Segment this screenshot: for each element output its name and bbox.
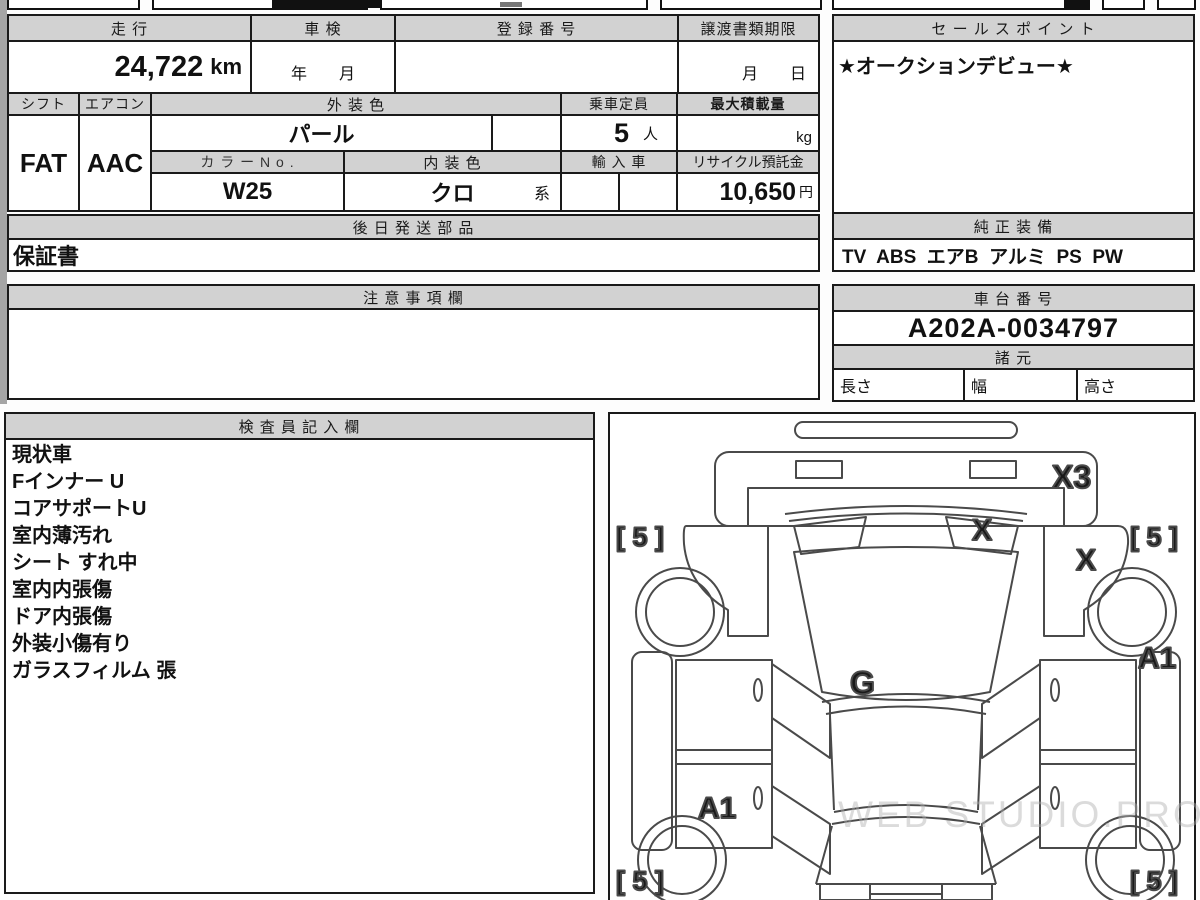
mileage-value: 24,722 km	[9, 42, 252, 94]
left-margin-strip	[0, 0, 7, 404]
sill-left	[632, 652, 672, 850]
handle-rear-right	[1051, 787, 1059, 809]
rear-band-1	[834, 805, 978, 812]
aircon-header: エアコン	[80, 94, 152, 116]
mark-g: G	[850, 665, 875, 701]
shift-value: FAT	[9, 116, 80, 210]
front-bumper-strip	[795, 422, 1017, 438]
transfer-deadline-value: 月 日	[679, 42, 818, 94]
inspector-note-line: Fインナー U	[12, 469, 587, 496]
inspector-box: 検 査 員 記 入 欄 現状車 Fインナー U コアサポートU 室内薄汚れ シー…	[4, 412, 595, 894]
exterior-color-extra	[493, 116, 562, 152]
top-cut-cell	[152, 0, 368, 10]
spec-height: 高さ	[1078, 370, 1193, 400]
handle-rear-left	[754, 787, 762, 809]
top-cut-cell	[660, 0, 822, 10]
notes-value	[9, 310, 818, 398]
exterior-color-header: 外 装 色	[152, 94, 562, 116]
auction-sheet: 走 行 車 検 登 録 番 号 譲渡書類期限 24,722 km 年 月 月 日…	[0, 0, 1200, 900]
later-parts-value: 保証書	[9, 240, 818, 270]
capacity-value: 5 人	[562, 116, 678, 152]
sales-point-header: セ ー ル ス ポ イ ン ト	[834, 16, 1193, 42]
cut-text-fragment	[500, 2, 522, 7]
mileage-header: 走 行	[9, 16, 252, 42]
doors-right	[1040, 660, 1136, 848]
inspector-note-line: 現状車	[12, 442, 587, 469]
max-load-header: 最大積載量	[678, 94, 818, 116]
max-load-value: kg	[678, 116, 818, 152]
registration-header: 登 録 番 号	[396, 16, 679, 42]
sales-point-box: セ ー ル ス ポ イ ン ト ★オークションデビュー★ 純 正 装 備 TV …	[832, 14, 1195, 272]
import-header: 輸 入 車	[562, 152, 678, 174]
inspector-note-line: シート すれ中	[12, 550, 587, 577]
car-diagram: X3 X X G A1 A1 [ 5 ] [ 5 ] [ 5 ] [ 5 ]	[610, 414, 1194, 900]
cut-text-fragment	[1064, 0, 1090, 8]
top-cut-cell	[832, 0, 1090, 10]
roof-band-2	[826, 707, 986, 715]
registration-value	[396, 42, 679, 94]
top-cut-cell	[380, 0, 648, 10]
sales-point-value: ★オークションデビュー★	[834, 42, 1193, 214]
wheel-front-right-inner	[1098, 578, 1166, 646]
inspector-note-line: ドア内張傷	[12, 604, 587, 631]
tire-mark-rear-right: [ 5 ]	[1130, 866, 1178, 896]
front-fender-right	[1044, 526, 1128, 636]
main-spec-table: 走 行 車 検 登 録 番 号 譲渡書類期限 24,722 km 年 月 月 日…	[7, 14, 820, 212]
inspector-header: 検 査 員 記 入 欄	[6, 414, 593, 440]
inspector-note-line: コアサポートU	[12, 496, 587, 523]
rear-band-2	[832, 817, 980, 824]
front-lamp-left	[796, 461, 842, 478]
inspection-value: 年 月	[252, 42, 396, 94]
inspector-note-line: ガラスフィルム 張	[12, 658, 587, 685]
chassis-box: 車 台 番 号 A202A-0034797 諸 元 長さ 幅 高さ	[832, 284, 1195, 402]
inspector-note-line: 外装小傷有り	[12, 631, 587, 658]
top-cut-cell	[1157, 0, 1196, 10]
later-parts-box: 後 日 発 送 部 品 保証書	[7, 214, 820, 272]
inspector-note-line: 室内薄汚れ	[12, 523, 587, 550]
shift-header: シフト	[9, 94, 80, 116]
recycle-value: 10,650 円	[678, 174, 818, 210]
aircon-value: AAC	[80, 116, 152, 210]
mark-fender-x: X	[1076, 544, 1096, 577]
glass-quad-right-front	[982, 664, 1040, 758]
top-cut-cell	[7, 0, 140, 10]
rear-notch-left	[820, 884, 870, 900]
front-fender-left	[684, 526, 768, 636]
specs-header: 諸 元	[834, 346, 1193, 370]
import-value-2	[620, 174, 678, 210]
mark-x3: X3	[1052, 459, 1091, 495]
notes-header: 注 意 事 項 欄	[9, 286, 818, 310]
color-no-header: カ ラ ー N o .	[152, 152, 345, 174]
import-value-1	[562, 174, 620, 210]
exterior-color-value: パール	[152, 116, 493, 152]
glass-quad-left-rear	[772, 786, 830, 874]
transfer-deadline-header: 譲渡書類期限	[679, 16, 818, 42]
wheel-front-left-inner	[646, 578, 714, 646]
handle-front-right	[1051, 679, 1059, 701]
cut-text-fragment	[272, 0, 386, 8]
interior-color-value: クロ 系	[345, 174, 562, 210]
rear-notch-right	[942, 884, 992, 900]
sill-right	[1140, 652, 1180, 850]
mark-a1-right: A1	[1138, 642, 1176, 675]
color-no-value: W25	[152, 174, 345, 210]
mark-a1-left: A1	[698, 792, 736, 825]
front-lamp-right	[970, 461, 1016, 478]
tire-mark-front-left: [ 5 ]	[616, 522, 664, 552]
later-parts-header: 後 日 発 送 部 品	[9, 216, 818, 240]
equipment-value: TV ABS エアB アルミ PS PW	[834, 240, 1193, 270]
inspector-notes: 現状車 Fインナー U コアサポートU 室内薄汚れ シート すれ中 室内内張傷 …	[12, 442, 587, 685]
spec-width: 幅	[965, 370, 1078, 400]
chassis-value: A202A-0034797	[834, 312, 1193, 346]
glass-quad-right-rear	[982, 786, 1040, 874]
handle-front-left	[754, 679, 762, 701]
chassis-header: 車 台 番 号	[834, 286, 1193, 312]
interior-color-header: 内 装 色	[345, 152, 562, 174]
hood	[794, 547, 1018, 700]
car-diagram-box: X3 X X G A1 A1 [ 5 ] [ 5 ] [ 5 ] [ 5 ]	[608, 412, 1196, 900]
wheel-front-left-outer	[636, 568, 724, 656]
glass-quad-left-front	[772, 664, 830, 758]
top-cut-cell	[1102, 0, 1145, 10]
tire-mark-front-right: [ 5 ]	[1130, 522, 1178, 552]
mark-cowl-x: X	[972, 514, 992, 547]
inspector-note-line: 室内内張傷	[12, 577, 587, 604]
inspection-header: 車 検	[252, 16, 396, 42]
equipment-header: 純 正 装 備	[834, 214, 1193, 240]
spec-length: 長さ	[834, 370, 965, 400]
recycle-header: リサイクル預託金	[678, 152, 818, 174]
capacity-header: 乗車定員	[562, 94, 678, 116]
notes-box: 注 意 事 項 欄	[7, 284, 820, 400]
tire-mark-rear-left: [ 5 ]	[616, 866, 664, 896]
